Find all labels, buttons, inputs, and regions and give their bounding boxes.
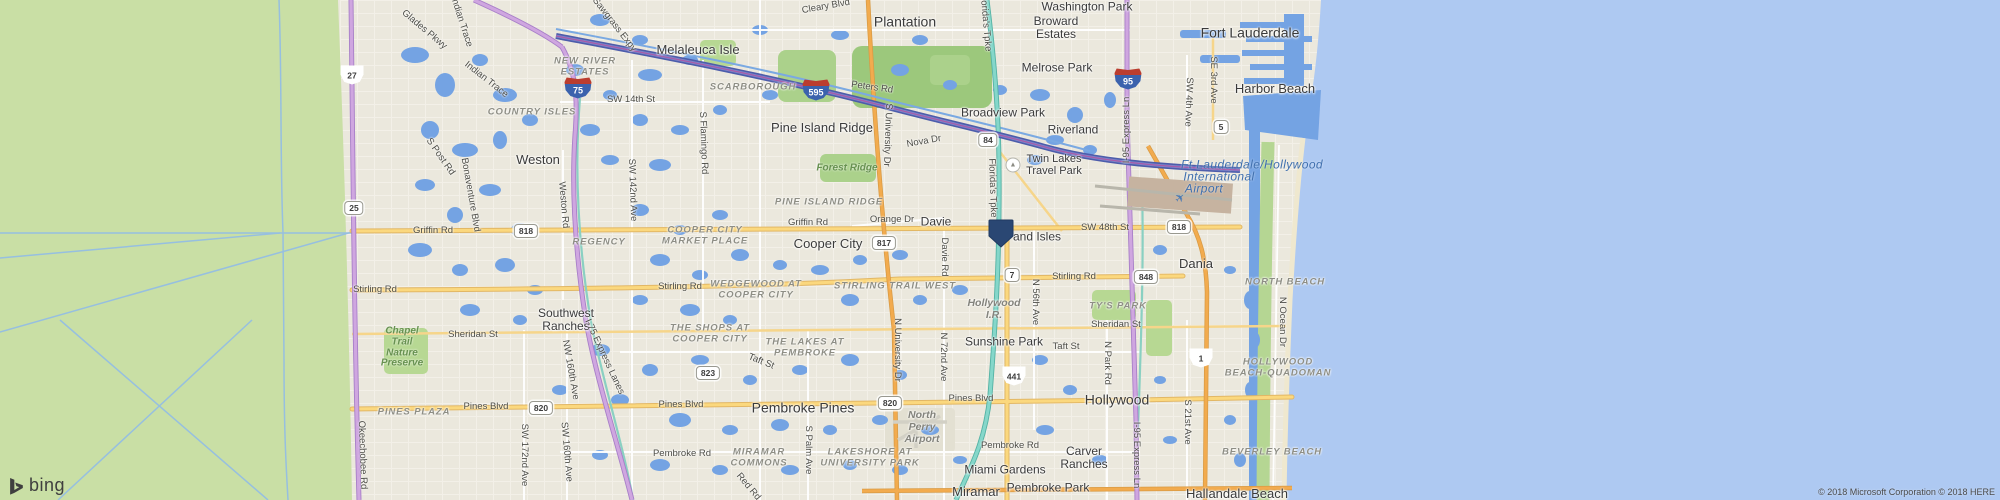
road-label: Pines Blvd <box>949 394 994 404</box>
city-label: Pembroke Park <box>1007 482 1090 495</box>
road-label: Taft St <box>1053 342 1080 352</box>
route-shield-818: 818 <box>1167 220 1191 234</box>
road-label: Davie Rd <box>939 237 949 276</box>
city-label: Fort Lauderdale <box>1201 25 1300 40</box>
city-label: Pine Island Ridge <box>771 121 873 135</box>
city-label: and Isles <box>1013 231 1061 244</box>
road-label: Pines Blvd <box>464 402 509 412</box>
road-label: Indian Trace <box>462 60 510 100</box>
road-label: I-95 Express Ln <box>1131 422 1141 489</box>
road-label: SW 4th Ave <box>1182 77 1194 127</box>
route-shield-25: 25 <box>344 201 363 215</box>
route-shield-7: 7 <box>1005 268 1020 282</box>
marker-pin-icon <box>988 219 1014 248</box>
route-shield-5: 5 <box>1214 120 1229 134</box>
copyright-text: © 2018 Microsoft Corporation © 2018 HERE <box>1818 487 1995 497</box>
city-label: Pembroke Pines <box>752 400 855 415</box>
bing-logo[interactable]: bing <box>10 475 65 496</box>
neighborhood-label: THE LAKES AT PEMBROKE <box>766 337 845 360</box>
city-label: Carver Ranches <box>1060 445 1107 471</box>
neighborhood-label: WEDGEWOOD AT COOPER CITY <box>710 279 802 302</box>
city-label: Southwest Ranches <box>538 307 594 333</box>
route-shield-75: 75 <box>565 78 592 99</box>
road-label: SW 172nd Ave <box>519 424 529 487</box>
nature-label: North Perry Airport <box>905 409 940 445</box>
road-label: Orange Dr <box>870 215 914 225</box>
neighborhood-label: BEVERLEY BEACH <box>1222 446 1322 457</box>
city-label: Harbor Beach <box>1235 82 1315 96</box>
city-label: Miami Gardens <box>964 464 1045 477</box>
campground-icon: ▲ <box>1006 158 1021 173</box>
bing-icon <box>10 477 24 495</box>
neighborhood-label: NORTH BEACH <box>1245 276 1325 287</box>
road-label: SW 48th St <box>1081 223 1129 233</box>
city-label: Sunshine Park <box>965 336 1043 349</box>
city-label: Plantation <box>874 14 936 29</box>
road-label: SW 14th St <box>607 95 655 105</box>
route-shield-84: 84 <box>978 133 997 147</box>
city-label: Washington Park <box>1042 1 1133 14</box>
city-label: Twin Lakes Travel Park <box>1026 154 1082 178</box>
nature-label: Hollywood I.R. <box>967 297 1020 321</box>
city-label: Dania <box>1179 257 1213 271</box>
water-label: International <box>1183 171 1254 184</box>
neighborhood-label: REGENCY <box>572 236 625 247</box>
road-label: Weston Rd <box>556 181 570 229</box>
route-shield-1: 1 <box>1190 349 1213 368</box>
road-label: Glades Pkwy <box>399 8 448 51</box>
city-label: Melaleuca Isle <box>656 43 739 57</box>
route-shield-441: 441 <box>1003 367 1026 386</box>
nature-label: Forest Ridge <box>816 164 877 175</box>
route-shield-27: 27 <box>341 66 364 85</box>
road-label: Sawgrass Expy <box>590 0 638 54</box>
road-label: SW 160th Ave <box>558 422 573 483</box>
neighborhood-label: LAKESHORE AT UNIVERSITY PARK <box>820 447 919 470</box>
road-label: Stirling Rd <box>1052 272 1096 282</box>
road-label: Griffin Rd <box>788 218 828 228</box>
route-shield-818: 818 <box>514 224 538 238</box>
road-label: Pembroke Rd <box>653 449 711 459</box>
road-label: Griffin Rd <box>413 226 453 236</box>
neighborhood-label: COOPER CITY MARKET PLACE <box>662 225 748 248</box>
route-shield-595: 595 <box>803 80 830 101</box>
route-shield-820: 820 <box>529 401 553 415</box>
neighborhood-label: TY'S PARK <box>1089 300 1147 311</box>
city-label: Cooper City <box>794 237 863 251</box>
city-label: Hollywood <box>1085 392 1150 407</box>
road-label: Stirling Rd <box>658 282 702 292</box>
road-label: NW 160th Ave <box>560 339 581 400</box>
road-label: Pines Blvd <box>659 400 704 410</box>
city-label: Broadview Park <box>961 107 1045 120</box>
water-label: Ft Lauderdale/Hollywood <box>1181 159 1323 172</box>
road-label: N University Dr <box>892 318 902 382</box>
road-label: N Park Rd <box>1102 341 1112 385</box>
route-shield-823: 823 <box>696 366 720 380</box>
road-label: I-95 Express Ln <box>1122 97 1132 164</box>
city-label: Broward Estates <box>1034 15 1079 41</box>
neighborhood-label: THE SHOPS AT COOPER CITY <box>670 323 750 346</box>
neighborhood-label: COUNTRY ISLES <box>488 106 576 117</box>
road-label: N Ocean Dr <box>1277 297 1287 347</box>
route-shield-817: 817 <box>872 236 896 250</box>
city-label: Riverland <box>1048 124 1099 137</box>
map-canvas[interactable]: PlantationFort LauderdaleWashington Park… <box>0 0 2000 500</box>
route-shield-820: 820 <box>878 396 902 410</box>
city-label: Melrose Park <box>1022 62 1093 75</box>
road-label: N 56th Ave <box>1030 279 1040 325</box>
road-label: Okeechobee Rd <box>356 421 369 490</box>
neighborhood-label: NEW RIVER ESTATES <box>554 56 616 79</box>
water-label: Airport <box>1185 183 1223 196</box>
road-label: S Flamingo Rd <box>697 111 709 174</box>
city-label: Davie <box>921 216 952 229</box>
road-label: Taft St <box>747 352 776 372</box>
road-label: Pembroke Rd <box>981 441 1039 451</box>
neighborhood-label: STIRLING TRAIL WEST <box>834 280 956 291</box>
road-label: S University Dr <box>881 103 893 167</box>
road-label: Sheridan St <box>448 330 498 340</box>
road-label: Nova Dr <box>906 134 942 150</box>
road-label: S Post Rd <box>424 137 457 178</box>
road-label: Florida's Tpke <box>986 158 998 218</box>
route-shield-848: 848 <box>1134 270 1158 284</box>
road-label: S Palm Ave <box>803 426 813 475</box>
road-label: Florida's Tpke <box>977 0 992 52</box>
neighborhood-label: HOLLYWOOD BEACH-QUADOMAN <box>1225 357 1332 380</box>
neighborhood-label: SCARBOROUGH <box>710 81 796 92</box>
location-marker[interactable] <box>988 219 1014 253</box>
road-label: Red Rd <box>734 471 763 500</box>
road-label: Cleary Blvd <box>801 0 851 16</box>
city-label: Hallandale Beach <box>1186 487 1288 500</box>
road-label: Sheridan St <box>1091 320 1141 330</box>
city-label: Weston <box>516 153 560 167</box>
road-label: Indian Trace <box>448 0 474 48</box>
neighborhood-label: MIRAMAR COMMONS <box>731 447 788 470</box>
neighborhood-label: PINE ISLAND RIDGE <box>775 196 883 207</box>
road-label: Bonaventure Blvd <box>458 157 481 233</box>
road-label: N 72nd Ave <box>938 333 948 382</box>
airplane-icon: ✈ <box>1172 190 1187 206</box>
road-label: Peters Rd <box>850 80 893 96</box>
road-label: Stirling Rd <box>353 285 397 295</box>
bing-logo-text: bing <box>29 475 65 496</box>
nature-label: Chapel Trail Nature Preserve <box>381 326 423 369</box>
road-label: S 21st Ave <box>1182 399 1192 444</box>
road-label: I-75 Express Lanes <box>582 318 626 397</box>
road-label: SW 142nd Ave <box>626 158 638 221</box>
road-label: SE 3rd Ave <box>1208 56 1218 103</box>
city-label: Miramar <box>952 485 1000 499</box>
route-shield-95: 95 <box>1115 69 1142 90</box>
neighborhood-label: PINES PLAZA <box>378 406 451 417</box>
